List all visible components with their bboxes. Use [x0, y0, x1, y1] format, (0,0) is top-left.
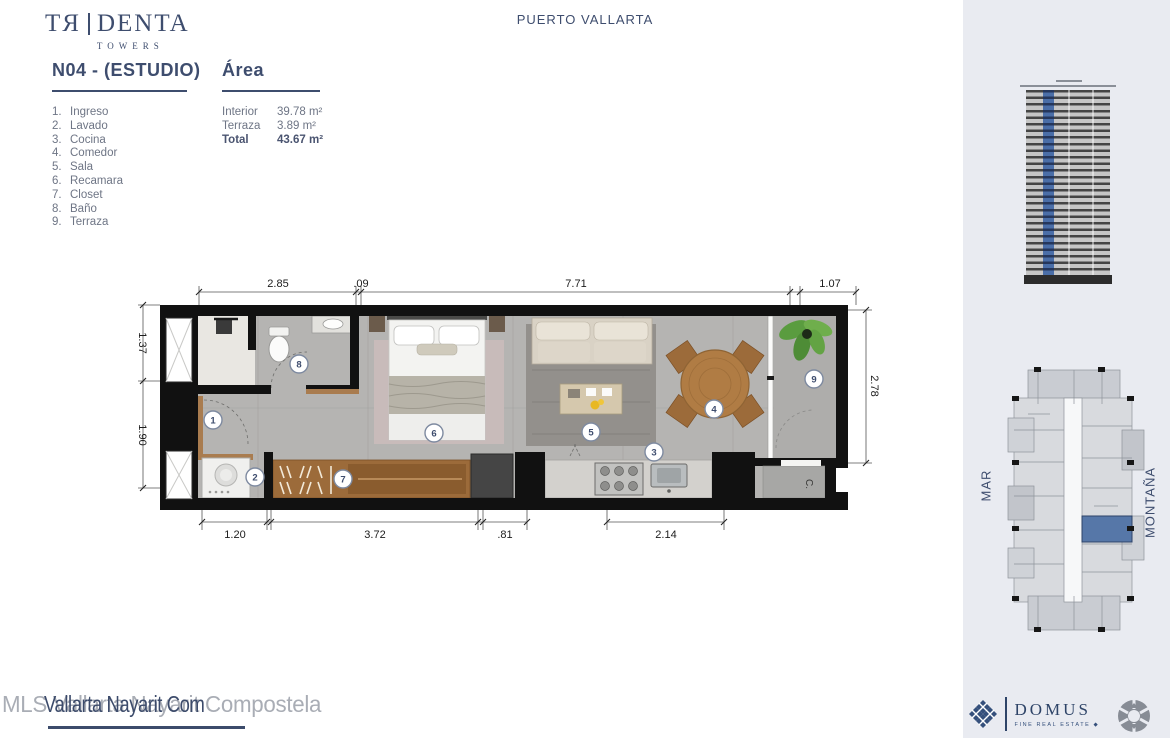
area-row-interior: Interior39.78 m² [222, 106, 323, 120]
area-title-rule [222, 90, 320, 92]
flyer-page: { "brand": { "wordmark_left": "TЯ", "wor… [0, 0, 1170, 738]
room-marker-3: 3 [645, 443, 663, 461]
logo-subtitle: TOWERS [45, 41, 190, 51]
dim-left-2: 1.90 [136, 424, 148, 445]
legend-item: 9.Terraza [52, 216, 201, 230]
legend-item: 8.Baño [52, 203, 201, 217]
legend-item: 5.Sala [52, 161, 201, 175]
svg-text:9: 9 [811, 375, 816, 386]
room-legend: 1.Ingreso 2.Lavado 3.Cocina 4.Comedor 5.… [52, 106, 201, 230]
unit-title-rule [52, 90, 187, 92]
tower-base [1024, 275, 1112, 284]
legend-item: 3.Cocina [52, 134, 201, 148]
closet-letter-label: C. [803, 479, 814, 489]
legend-item: 2.Lavado [52, 120, 201, 134]
dim-right-1: 2.78 [868, 375, 880, 396]
keyplan-floorplate [998, 366, 1148, 634]
room-marker-7: 7 [334, 470, 352, 488]
storage-closet: C. [755, 458, 836, 498]
domus-name: DOMUS [1015, 700, 1100, 720]
washing-machine [202, 458, 250, 498]
dim-bottom-1: 1.20 [224, 529, 245, 541]
tower-column-divider [1092, 90, 1094, 276]
domus-knot-icon [967, 698, 999, 730]
keyplan-highlighted-unit [1082, 516, 1132, 542]
room-marker-6: 6 [425, 424, 443, 442]
dim-left-1: 1.37 [136, 332, 148, 353]
svg-text:7: 7 [340, 475, 345, 486]
domus-divider [1005, 697, 1007, 731]
watermark-overlay-text: Vallarta Nayarit Com [44, 691, 204, 718]
dim-top-2: .09 [353, 278, 368, 290]
floor-plan: 2.85 .09 7.71 1.07 1.20 3.72 .81 2.14 1.… [118, 248, 888, 558]
svg-text:5: 5 [588, 428, 594, 439]
orientation-label-mountain: MONTAÑA [1143, 448, 1158, 558]
tridenta-logo: TЯ DENTA TOWERS [45, 10, 190, 51]
logo-wordmark-right: DENTA [97, 10, 190, 38]
dim-top-3: 7.71 [565, 278, 586, 290]
dim-bottom-3: .81 [497, 529, 512, 541]
dim-top-4: 1.07 [819, 278, 840, 290]
svg-text:4: 4 [711, 405, 717, 416]
unit-title: N04 - (ESTUDIO) [52, 60, 201, 81]
area-table: Interior39.78 m² Terraza3.89 m² Total43.… [222, 106, 323, 147]
sliding-door [768, 316, 773, 460]
watermark-underline [48, 726, 245, 729]
svg-text:1: 1 [210, 416, 216, 427]
logo-divider-bar [88, 13, 90, 35]
area-title: Área [222, 60, 323, 81]
room-marker-5: 5 [582, 423, 600, 441]
logo-wordmark-left: TЯ [45, 10, 81, 38]
svg-text:2: 2 [252, 473, 257, 484]
legend-item: 4.Comedor [52, 147, 201, 161]
svg-text:6: 6 [431, 429, 436, 440]
domus-logo: DOMUS FINE REAL ESTATE ◆ [967, 697, 1099, 731]
dim-top-1: 2.85 [267, 278, 288, 290]
closet-shelving [273, 460, 470, 498]
dim-bottom-4: 2.14 [655, 529, 676, 541]
association-emblem-icon [1115, 697, 1153, 735]
area-row-total: Total43.67 m² [222, 134, 323, 148]
refrigerator [471, 454, 513, 498]
svg-text:3: 3 [651, 448, 656, 459]
legend-item: 7.Closet [52, 189, 201, 203]
terrace [767, 316, 836, 460]
legend-item: 6.Recamara [52, 175, 201, 189]
tower-unit-highlight-stripe [1043, 90, 1054, 276]
bathroom-sill [306, 389, 359, 394]
orientation-label-sea: MAR [979, 441, 994, 531]
room-marker-9: 9 [805, 370, 823, 388]
tower-elevation-image [1026, 90, 1110, 276]
room-marker-4: 4 [705, 400, 723, 418]
room-marker-8: 8 [290, 355, 308, 373]
dim-bottom-2: 3.72 [364, 529, 385, 541]
tower-column-divider [1068, 90, 1070, 276]
legend-item: 1.Ingreso [52, 106, 201, 120]
svg-text:8: 8 [296, 360, 301, 371]
room-marker-2: 2 [246, 468, 264, 486]
area-row-terraza: Terraza3.89 m² [222, 120, 323, 134]
room-marker-1: 1 [204, 411, 222, 429]
domus-tagline: FINE REAL ESTATE ◆ [1015, 722, 1100, 728]
